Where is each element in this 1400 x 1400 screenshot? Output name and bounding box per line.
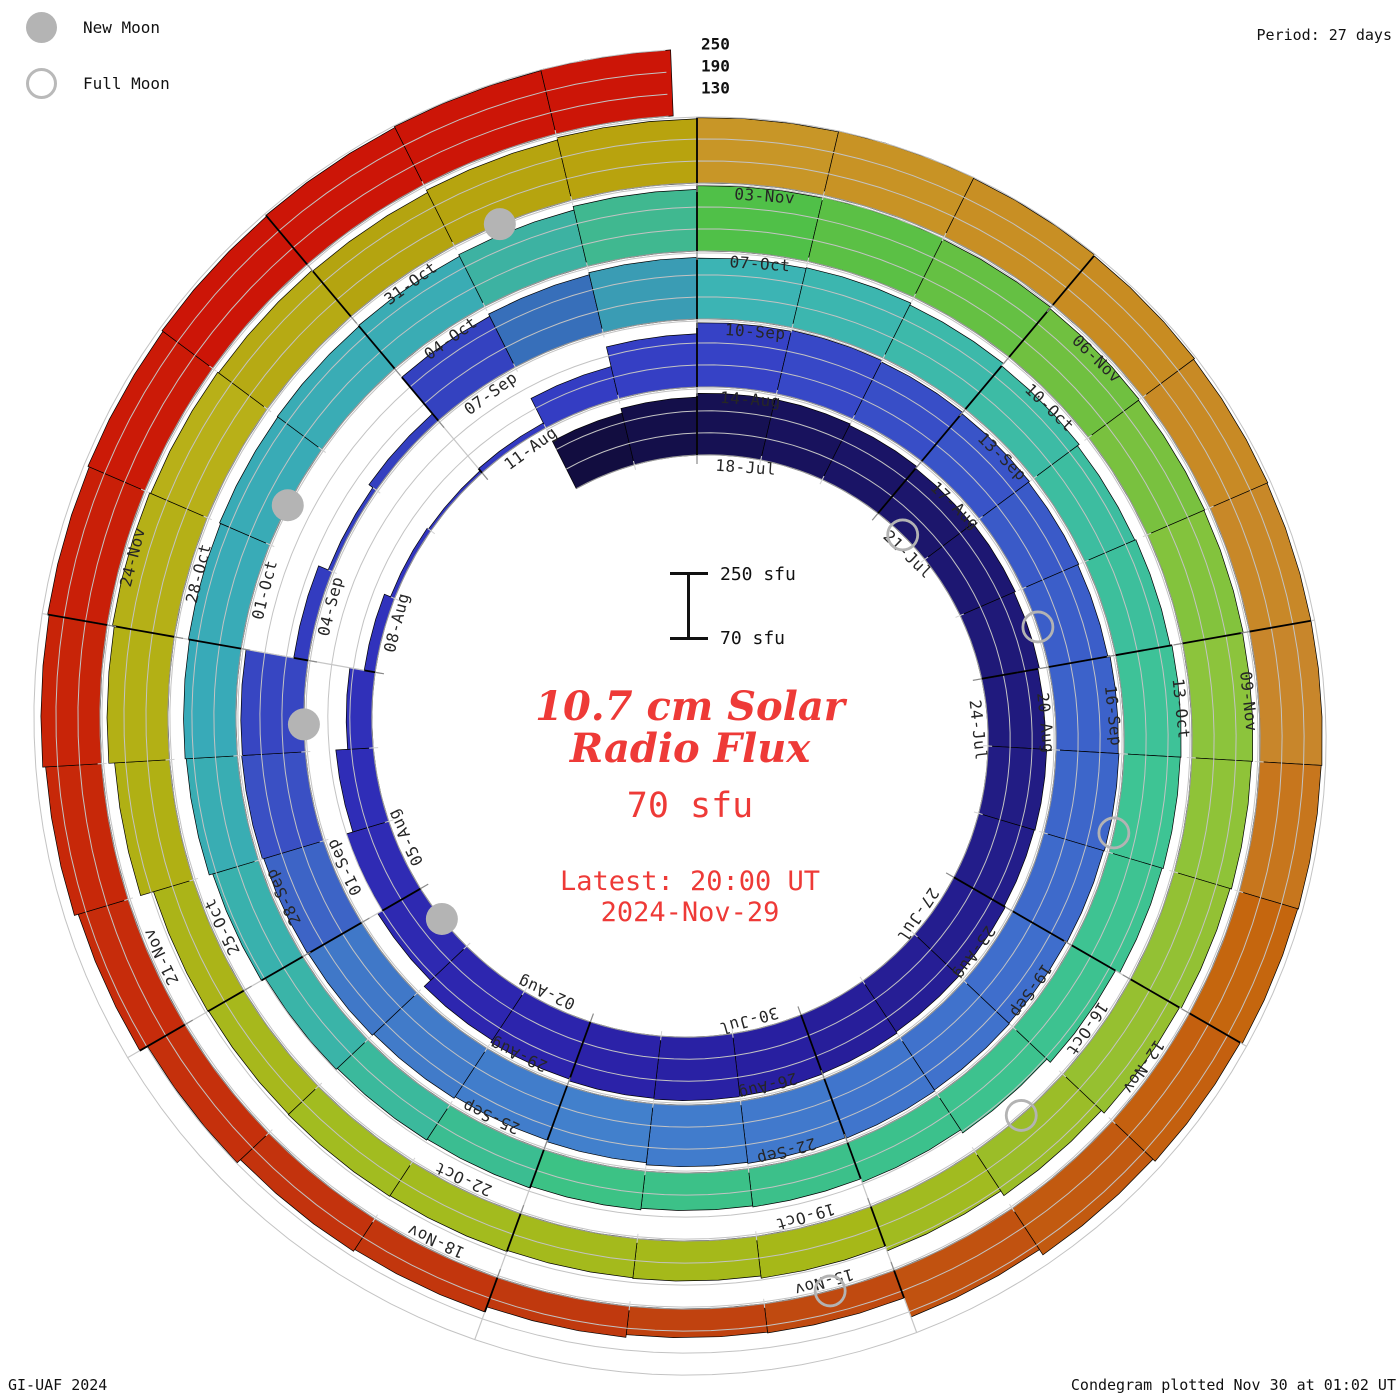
flux-bar bbox=[487, 1278, 630, 1338]
three-day-gridline bbox=[440, 422, 482, 473]
day-tick bbox=[98, 763, 107, 764]
day-tick bbox=[369, 748, 378, 749]
flux-bar bbox=[552, 413, 634, 489]
date-label: 18-Jul bbox=[715, 456, 777, 479]
flux-axis-label: 130 bbox=[701, 79, 730, 98]
flux-bar bbox=[641, 1169, 753, 1211]
plotted-timestamp: Condegram plotted Nov 30 at 01:02 UT bbox=[1071, 1376, 1396, 1394]
label-tick bbox=[308, 660, 317, 662]
current-flux-value: 70 sfu bbox=[390, 786, 990, 826]
chart-title-line2: Radio Flux bbox=[390, 728, 990, 770]
scale-max-label: 250 sfu bbox=[720, 564, 796, 585]
flux-bar bbox=[573, 189, 697, 266]
scale-bar-bottom-cap bbox=[670, 637, 708, 640]
day-tick bbox=[301, 752, 310, 753]
label-tick bbox=[482, 473, 488, 480]
chart-title-line1: 10.7 cm Solar bbox=[390, 686, 990, 728]
full-moon-label: Full Moon bbox=[83, 74, 170, 93]
scale-bar-stem bbox=[687, 572, 690, 640]
label-tick bbox=[307, 264, 313, 271]
flux-bar bbox=[633, 1236, 761, 1281]
flux-bar bbox=[336, 748, 389, 832]
day-tick bbox=[1187, 758, 1196, 759]
new-moon-marker bbox=[272, 489, 304, 521]
label-tick bbox=[351, 317, 357, 324]
label-tick bbox=[438, 421, 444, 428]
new-moon-marker bbox=[288, 708, 320, 740]
flux-bar bbox=[46, 764, 129, 916]
condegram-page: 18-Jul21-Jul24-Jul27-Jul30-Jul02-Aug05-A… bbox=[0, 0, 1400, 1400]
latest-time: Latest: 20:00 UT bbox=[390, 866, 990, 897]
label-tick bbox=[916, 461, 922, 468]
day-tick bbox=[166, 759, 175, 760]
day-tick bbox=[1119, 754, 1128, 755]
flux-bar bbox=[646, 1101, 748, 1167]
full-moon-icon bbox=[26, 68, 57, 99]
flux-bar bbox=[621, 397, 697, 465]
flux-axis-label: 250 bbox=[701, 35, 730, 54]
flux-axis-label: 190 bbox=[701, 57, 730, 76]
scale-min-label: 70 sfu bbox=[720, 628, 785, 649]
day-tick bbox=[1255, 761, 1264, 762]
flux-bar bbox=[241, 650, 308, 756]
new-moon-icon bbox=[26, 12, 57, 43]
period-label: Period: 27 days bbox=[1257, 26, 1392, 44]
label-tick bbox=[395, 369, 401, 376]
legend-full-moon: Full Moon bbox=[26, 68, 170, 99]
label-tick bbox=[590, 1014, 593, 1022]
center-annotation: 10.7 cm Solar Radio Flux 70 sfu Latest: … bbox=[390, 686, 990, 928]
label-tick bbox=[872, 513, 878, 520]
flux-bar bbox=[369, 414, 438, 491]
new-moon-label: New Moon bbox=[83, 18, 160, 37]
label-tick bbox=[241, 649, 250, 651]
label-tick bbox=[973, 679, 982, 681]
flux-bar bbox=[697, 118, 839, 196]
flux-bar bbox=[242, 752, 324, 859]
label-tick bbox=[798, 1006, 801, 1014]
day-tick bbox=[233, 755, 242, 756]
flux-bar bbox=[107, 626, 174, 763]
flux-bar bbox=[654, 1034, 740, 1101]
credit-label: GI-UAF 2024 bbox=[8, 1376, 107, 1394]
legend-new-moon: New Moon bbox=[26, 12, 160, 43]
flux-bar bbox=[41, 615, 107, 767]
label-tick bbox=[1003, 357, 1009, 364]
new-moon-marker bbox=[484, 208, 516, 240]
flux-bar bbox=[507, 1214, 637, 1278]
flux-scale-bar: 250 sfu 70 sfu bbox=[652, 560, 872, 660]
label-tick bbox=[375, 672, 384, 674]
flux-bar bbox=[589, 257, 697, 332]
latest-date: 2024-Nov-29 bbox=[390, 897, 990, 928]
